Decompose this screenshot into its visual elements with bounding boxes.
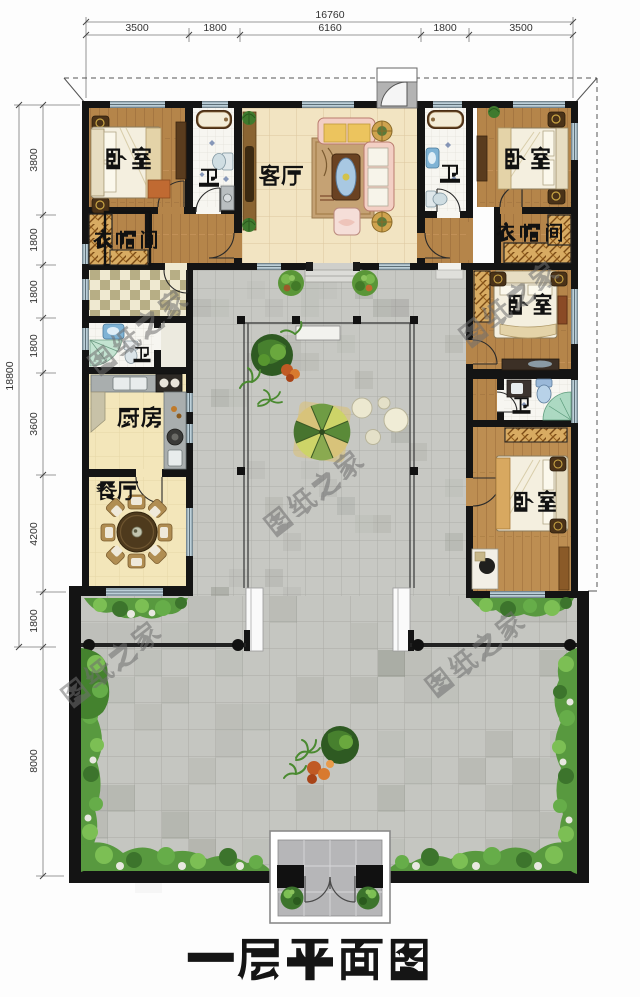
svg-text:6160: 6160 bbox=[318, 22, 342, 34]
svg-text:1800: 1800 bbox=[28, 609, 40, 633]
svg-text:3500: 3500 bbox=[509, 22, 533, 34]
svg-text:3800: 3800 bbox=[28, 148, 40, 172]
svg-text:4200: 4200 bbox=[28, 522, 40, 546]
svg-text:1800: 1800 bbox=[28, 334, 40, 358]
svg-text:3500: 3500 bbox=[125, 22, 149, 34]
svg-text:1800: 1800 bbox=[433, 22, 457, 34]
svg-text:18800: 18800 bbox=[4, 361, 16, 390]
svg-text:1800: 1800 bbox=[28, 228, 40, 252]
svg-text:16760: 16760 bbox=[315, 9, 344, 21]
svg-text:1800: 1800 bbox=[28, 280, 40, 304]
svg-text:1800: 1800 bbox=[203, 22, 227, 34]
svg-text:8000: 8000 bbox=[28, 749, 40, 773]
svg-text:3600: 3600 bbox=[28, 412, 40, 436]
